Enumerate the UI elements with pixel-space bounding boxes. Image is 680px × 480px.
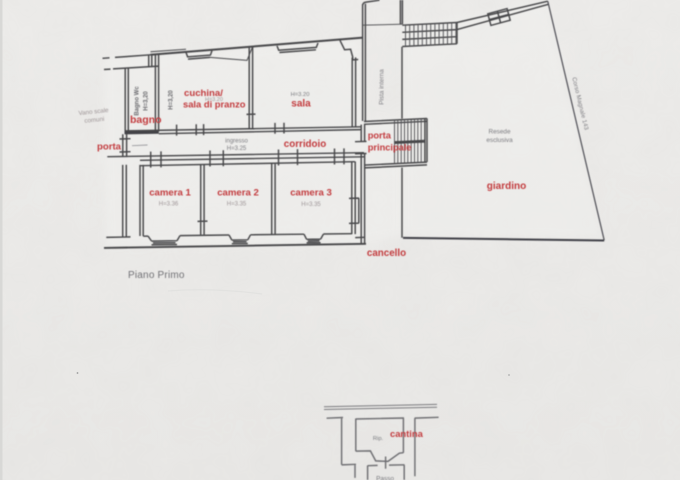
svg-text:Passo: Passo (376, 476, 394, 480)
svg-text:sala: sala (291, 99, 311, 110)
svg-text:H=3.35: H=3.35 (301, 202, 321, 208)
svg-text:H=3.35: H=3.35 (227, 202, 247, 208)
svg-text:ingresso: ingresso (225, 139, 248, 145)
svg-text:H=3.25: H=3.25 (227, 146, 247, 152)
svg-text:cantina: cantina (390, 428, 424, 439)
svg-text:Bagno Wc: Bagno Wc (135, 86, 141, 116)
svg-text:porta: porta (368, 131, 392, 141)
svg-text:giardino: giardino (487, 181, 526, 192)
svg-text:H=3.20: H=3.20 (205, 97, 223, 103)
svg-text:Pista interna: Pista interna (379, 69, 386, 105)
svg-text:H=3,20: H=3,20 (144, 91, 150, 111)
svg-text:Piano Primo: Piano Primo (128, 270, 185, 281)
svg-text:H=3,20: H=3,20 (169, 90, 175, 110)
svg-text:porta: porta (97, 141, 122, 152)
svg-text:principale: principale (368, 143, 412, 153)
svg-text:camera 3: camera 3 (290, 187, 332, 198)
svg-text:Rip.: Rip. (373, 436, 384, 442)
svg-text:camera 2: camera 2 (217, 187, 259, 198)
svg-text:cancello: cancello (367, 248, 406, 259)
svg-text:H=3.36: H=3.36 (159, 202, 179, 208)
svg-text:Resede: Resede (488, 128, 510, 135)
svg-text:H=3.20: H=3.20 (291, 92, 310, 98)
svg-text:camera 1: camera 1 (149, 187, 191, 198)
svg-text:bagno: bagno (130, 114, 162, 126)
svg-text:esclusiva: esclusiva (486, 137, 513, 144)
svg-text:corridoio: corridoio (284, 139, 326, 150)
